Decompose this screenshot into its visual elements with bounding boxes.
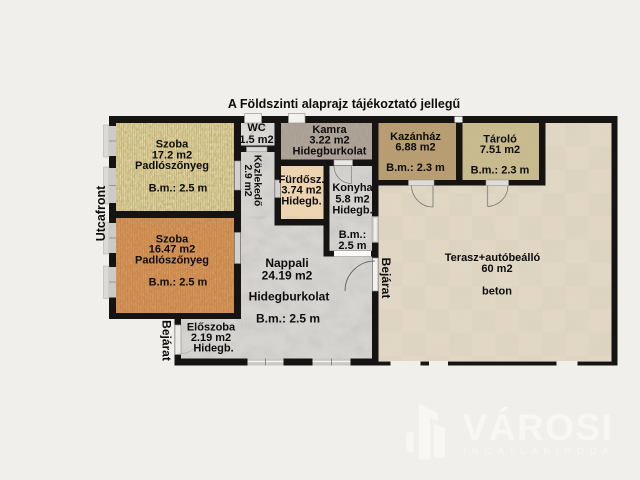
svg-text:2.5 m: 2.5 m — [338, 240, 366, 252]
svg-text:Hidegb.: Hidegb. — [281, 196, 321, 208]
svg-text:Hidegb.: Hidegb. — [193, 343, 233, 355]
svg-text:Hidegburkolat: Hidegburkolat — [249, 290, 330, 304]
svg-text:Padlószőnyeg: Padlószőnyeg — [135, 160, 209, 172]
svg-text:1.5 m2: 1.5 m2 — [239, 134, 273, 146]
svg-text:Bejárat: Bejárat — [379, 258, 393, 299]
svg-text:B.m.: 2.5 m: B.m.: 2.5 m — [149, 183, 208, 195]
svg-text:7.51 m2: 7.51 m2 — [480, 144, 520, 156]
svg-text:VÁROSI: VÁROSI — [463, 407, 614, 448]
svg-text:Konyha: Konyha — [332, 182, 373, 194]
svg-text:Bejárat: Bejárat — [160, 320, 174, 361]
svg-text:A Földszinti alaprajz tájékozt: A Földszinti alaprajz tájékoztató jelleg… — [228, 97, 460, 111]
svg-text:B.m.: 2.5 m: B.m.: 2.5 m — [149, 277, 208, 289]
svg-text:beton: beton — [482, 286, 512, 298]
svg-text:Utcafront: Utcafront — [94, 185, 108, 241]
svg-text:24.19 m2: 24.19 m2 — [262, 269, 313, 283]
svg-text:Hidegburkolat: Hidegburkolat — [293, 146, 367, 158]
svg-text:Hidegb.: Hidegb. — [332, 205, 372, 217]
svg-text:B.m.: 2.3 m: B.m.: 2.3 m — [471, 165, 530, 177]
svg-text:B.m.: 2.3 m: B.m.: 2.3 m — [386, 162, 445, 174]
svg-text:6.88 m2: 6.88 m2 — [395, 142, 435, 154]
svg-text:60 m2: 60 m2 — [481, 263, 512, 275]
svg-text:2.9 m2: 2.9 m2 — [242, 164, 253, 196]
svg-text:WC: WC — [247, 122, 265, 134]
svg-text:Padlószőnyeg: Padlószőnyeg — [135, 255, 209, 267]
svg-text:INGATLANIRODA: INGATLANIRODA — [464, 446, 615, 457]
svg-text:B.m.: 2.5 m: B.m.: 2.5 m — [256, 312, 320, 326]
